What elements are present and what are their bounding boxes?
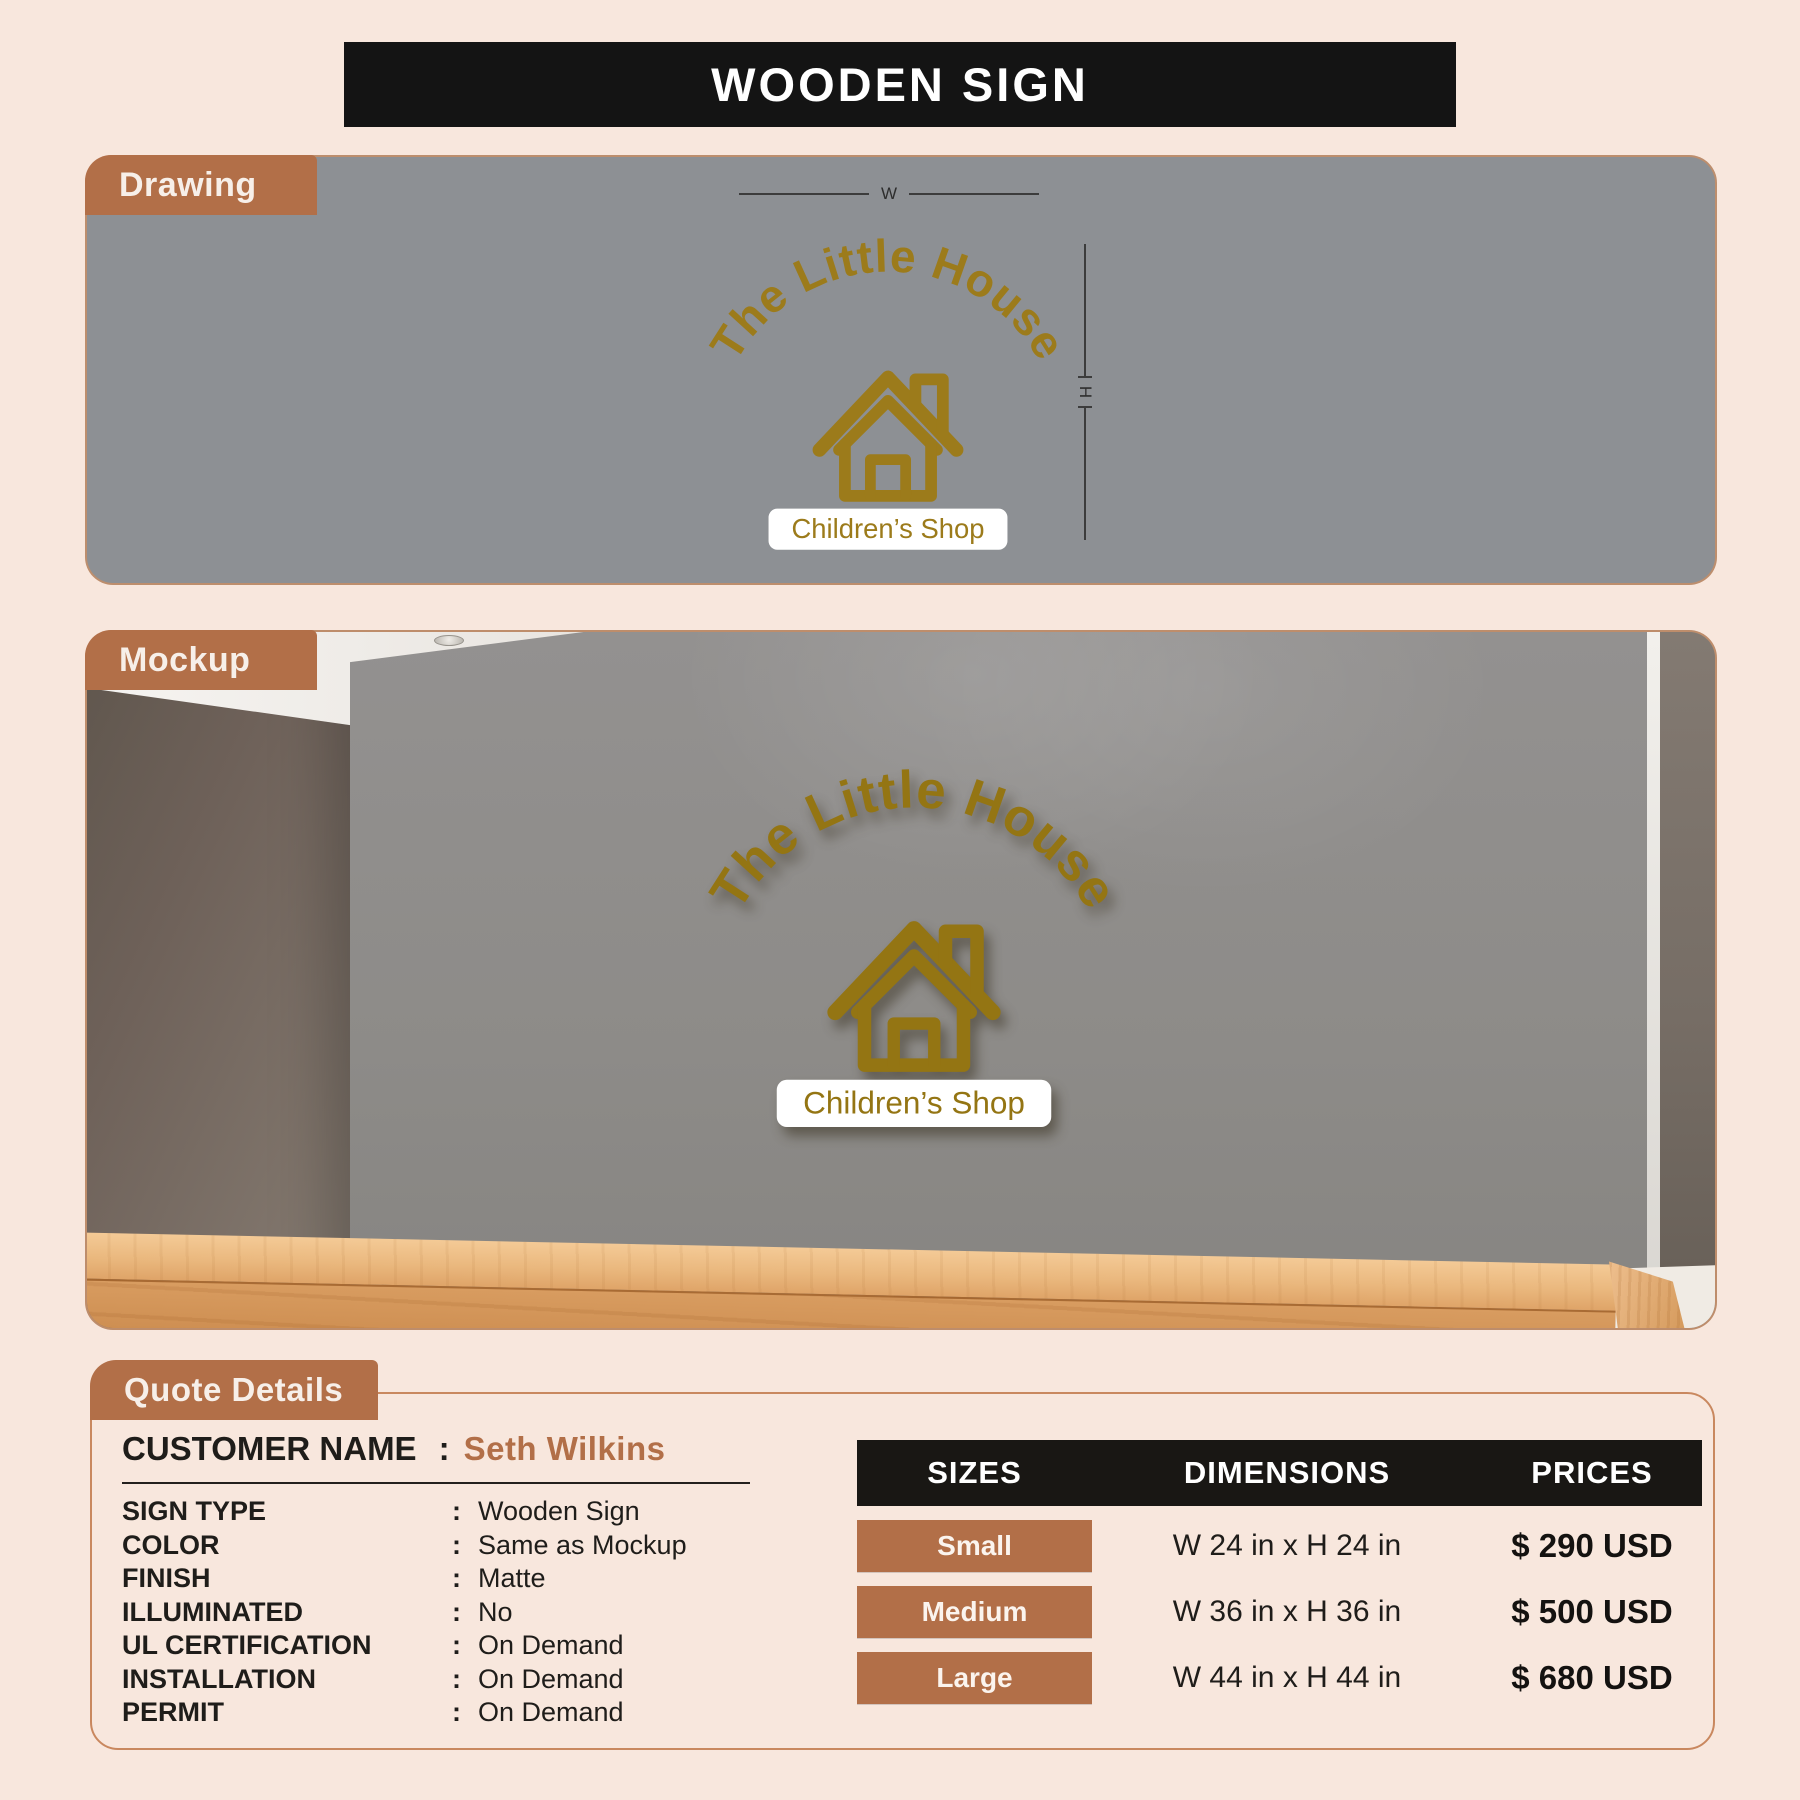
row-dimensions: W 44 in x H 44 in [1092, 1661, 1482, 1695]
customer-name-value: Seth Wilkins [464, 1430, 666, 1468]
quote-field-row: UL CERTIFICATION : On Demand [122, 1630, 802, 1664]
sign-logo-drawing: The Little House Children’s Shop [653, 197, 1123, 550]
mockup-wall-edge-strip [1647, 632, 1660, 1330]
page-title: WOODEN SIGN [344, 42, 1456, 127]
colon: : [452, 1630, 478, 1661]
quote-fields: SIGN TYPE : Wooden Sign COLOR : Same as … [122, 1496, 802, 1731]
header-dimensions: DIMENSIONS [1092, 1455, 1482, 1491]
quote-field-row: SIGN TYPE : Wooden Sign [122, 1496, 802, 1530]
field-label: SIGN TYPE [122, 1496, 452, 1527]
colon: : [452, 1530, 478, 1561]
quote-field-row: ILLUMINATED : No [122, 1597, 802, 1631]
pricing-row-large: Large W 44 in x H 44 in $ 680 USD [857, 1652, 1702, 1704]
logo-arc-text: The Little House [700, 229, 1077, 368]
quote-field-row: COLOR : Same as Mockup [122, 1530, 802, 1564]
row-dimensions: W 36 in x H 36 in [1092, 1595, 1482, 1629]
mockup-section-label: Mockup [119, 641, 250, 680]
field-value: On Demand [478, 1697, 624, 1728]
quote-field-row: PERMIT : On Demand [122, 1697, 802, 1731]
field-label: INSTALLATION [122, 1664, 452, 1695]
mockup-section-tab: Mockup [85, 630, 317, 690]
customer-underline [122, 1482, 750, 1484]
row-price: $ 290 USD [1482, 1527, 1702, 1565]
quote-details-panel: CUSTOMER NAME : Seth Wilkins SIGN TYPE :… [90, 1392, 1715, 1750]
ceiling-light [434, 635, 464, 646]
field-value: No [478, 1597, 513, 1628]
pricing-table-header: SIZES DIMENSIONS PRICES [857, 1440, 1702, 1506]
drawing-section-label: Drawing [119, 166, 257, 205]
header-sizes: SIZES [857, 1455, 1092, 1491]
colon: : [452, 1496, 478, 1527]
quote-sheet: { "page": { "title": "WOODEN SIGN" }, "s… [0, 0, 1800, 1800]
field-value: Matte [478, 1563, 546, 1594]
field-value: Same as Mockup [478, 1530, 687, 1561]
row-price: $ 680 USD [1482, 1659, 1702, 1697]
quote-details-label: Quote Details [124, 1371, 343, 1409]
drawing-section-tab: Drawing [85, 155, 317, 215]
row-dimensions: W 24 in x H 24 in [1092, 1529, 1482, 1563]
colon: : [452, 1664, 478, 1695]
field-value: Wooden Sign [478, 1496, 640, 1527]
house-icon [819, 377, 956, 495]
drawing-panel: W H The Little House Children’s Shop [85, 155, 1717, 585]
field-value: On Demand [478, 1664, 624, 1695]
colon: : [439, 1430, 450, 1468]
colon: : [452, 1697, 478, 1728]
sign-logo-mockup: The Little House Children’s Shop [644, 722, 1184, 1127]
header-prices: PRICES [1482, 1455, 1702, 1491]
logo-tagline: Children’s Shop [803, 1085, 1025, 1121]
customer-name-label: CUSTOMER NAME [122, 1430, 417, 1468]
pricing-row-small: Small W 24 in x H 24 in $ 290 USD [857, 1520, 1702, 1572]
size-badge: Large [857, 1652, 1092, 1704]
customer-name-row: CUSTOMER NAME : Seth Wilkins [122, 1430, 665, 1468]
quote-field-row: INSTALLATION : On Demand [122, 1664, 802, 1698]
field-label: FINISH [122, 1563, 452, 1594]
mockup-panel: The Little House Children’s Shop [85, 630, 1717, 1330]
logo-arc-text: The Little House [699, 760, 1129, 919]
dimension-line-segment [909, 193, 1039, 195]
colon: : [452, 1563, 478, 1594]
dimension-line-segment [739, 193, 869, 195]
row-price: $ 500 USD [1482, 1593, 1702, 1631]
mockup-left-wall [87, 632, 350, 1330]
colon: : [452, 1597, 478, 1628]
logo-tagline: Children’s Shop [792, 513, 985, 544]
house-icon [835, 929, 993, 1065]
field-label: ILLUMINATED [122, 1597, 452, 1628]
size-badge: Medium [857, 1586, 1092, 1638]
pricing-row-medium: Medium W 36 in x H 36 in $ 500 USD [857, 1586, 1702, 1638]
field-label: PERMIT [122, 1697, 452, 1728]
size-badge: Small [857, 1520, 1092, 1572]
field-label: UL CERTIFICATION [122, 1630, 452, 1661]
quote-field-row: FINISH : Matte [122, 1563, 802, 1597]
mockup-right-wall [1660, 632, 1717, 1330]
pricing-table: SIZES DIMENSIONS PRICES Small W 24 in x … [857, 1440, 1702, 1704]
field-value: On Demand [478, 1630, 624, 1661]
field-label: COLOR [122, 1530, 452, 1561]
quote-details-tab: Quote Details [90, 1360, 378, 1420]
